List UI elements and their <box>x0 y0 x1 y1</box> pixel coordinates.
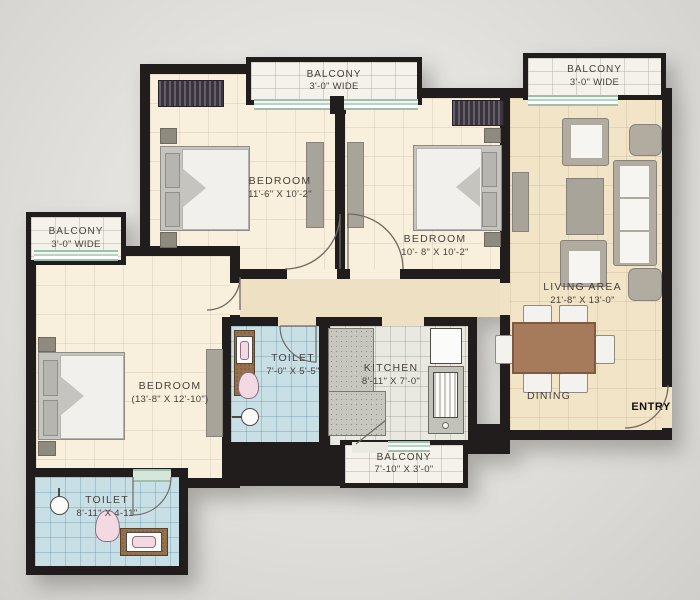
door-opening-bedroom1 <box>287 269 337 279</box>
window-balcony-bottom <box>388 441 430 452</box>
nightstand <box>160 232 177 248</box>
balcony-bottom-label: BALCONY 7'-10" X 3'-0" <box>375 451 434 477</box>
corridor-floor <box>240 279 500 317</box>
label-toilet-bottom: TOILET 8'-11" X 4-11" <box>62 494 152 520</box>
toilet-wc <box>238 372 259 399</box>
sheet-fold <box>456 167 480 207</box>
floor-plan-canvas: BALCONY 3'-0" WIDE BALCONY 3'-0" WIDE BA… <box>0 0 700 600</box>
sofa-cushion <box>619 231 650 264</box>
nightstand <box>38 441 56 456</box>
nightstand <box>38 337 56 352</box>
sofa-three-seat <box>613 160 657 266</box>
washbasin <box>236 336 253 364</box>
balcony-top-middle-label: BALCONY 3'-0" WIDE <box>307 68 362 94</box>
armchair-cushion <box>570 124 603 159</box>
balcony-left-label: BALCONY 3'-0" WIDE <box>49 225 104 251</box>
pillow <box>165 153 180 188</box>
sheet-fold <box>182 168 206 208</box>
window-balcony-left <box>34 250 118 261</box>
armchair <box>560 240 607 287</box>
nightstand <box>160 128 177 144</box>
kitchen-sink <box>433 372 458 418</box>
pillow <box>482 192 497 227</box>
door-opening-toilet-center <box>278 317 316 326</box>
passage-corridor-living <box>500 283 510 315</box>
dining-table <box>512 322 596 374</box>
kitchen-counter <box>328 391 386 436</box>
sofa-cushion <box>619 165 650 198</box>
window-balcony-top-right <box>528 95 618 106</box>
sofa-cushion <box>619 198 650 231</box>
tv-console <box>512 172 529 232</box>
wall-window-divider <box>330 96 344 114</box>
apartment-floor-plan: BALCONY 3'-0" WIDE BALCONY 3'-0" WIDE BA… <box>0 0 700 600</box>
dining-chair <box>595 335 615 364</box>
armchair-cushion <box>568 250 601 284</box>
wardrobe-hatch-bedroom2 <box>452 100 504 126</box>
bed-bedroom2 <box>413 145 502 231</box>
nightstand <box>484 232 501 247</box>
label-kitchen: KITCHEN 8'-11" X 7'-0" <box>353 362 429 388</box>
coffee-table <box>566 178 604 235</box>
door-opening-kitchen <box>382 317 424 326</box>
label-bedroom2: BEDROOM 10'- 8" X 10'-2" <box>385 233 485 259</box>
wardrobe-hatch-bedroom1 <box>158 80 224 107</box>
basin-bowl <box>240 341 249 360</box>
label-entry: ENTRY <box>630 400 672 414</box>
label-dining: DINING <box>513 390 585 404</box>
label-living-area: LIVING AREA 21'-8" X 13'-0" <box>525 281 640 307</box>
pillow <box>165 192 180 227</box>
side-table <box>629 124 662 156</box>
door-opening-bedroom2 <box>350 269 400 279</box>
label-bedroom1: BEDROOM 11'-6" X 10'-2" <box>225 175 335 201</box>
pillow <box>482 152 497 187</box>
door-opening-master <box>230 283 240 315</box>
sink-counter <box>428 366 464 434</box>
balcony-top-right: BALCONY 3'-0" WIDE <box>523 53 666 100</box>
label-toilet-center: TOILET 7'-0" X 5'-5" <box>258 352 328 378</box>
shower <box>232 408 258 428</box>
washbasin <box>126 532 162 552</box>
pillow <box>43 400 58 436</box>
sheet-fold <box>60 376 84 416</box>
refrigerator <box>430 328 462 364</box>
wardrobe-bedroom2 <box>347 142 364 228</box>
door-master-toilet <box>133 469 171 482</box>
balcony-top-right-label: BALCONY 3'-0" WIDE <box>567 63 622 89</box>
door-opening-kitchen-balcony <box>352 442 388 453</box>
pillow <box>43 360 58 396</box>
armchair <box>562 118 609 166</box>
nightstand <box>484 128 501 143</box>
label-master-bedroom: BEDROOM (13'-8" X 12'-10") <box>105 380 235 406</box>
